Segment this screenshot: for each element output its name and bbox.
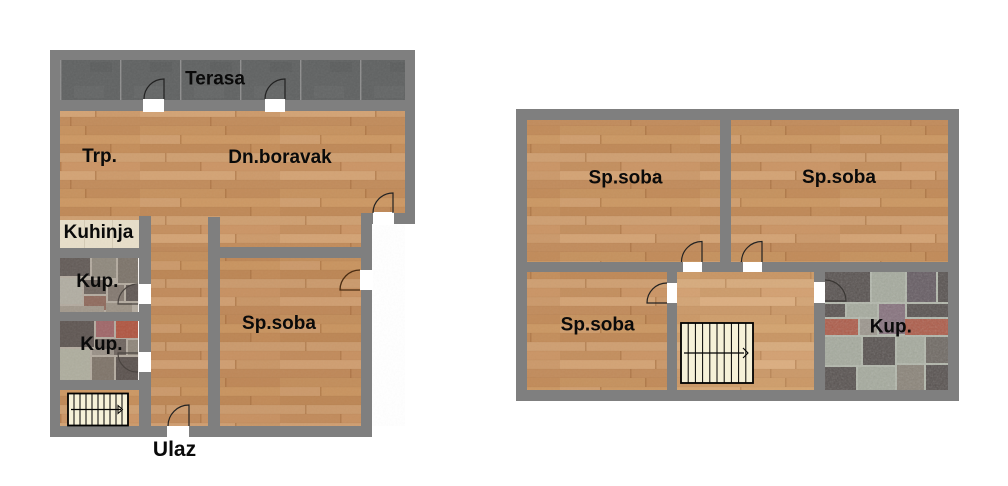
svg-text:Sp.soba: Sp.soba [561,315,635,336]
svg-text:Kup.: Kup. [870,317,912,338]
svg-text:Dn.boravak: Dn.boravak [228,147,332,168]
svg-text:Kup.: Kup. [76,271,118,292]
svg-text:Sp.soba: Sp.soba [242,313,316,334]
svg-text:Trp.: Trp. [82,146,117,167]
svg-text:Sp.soba: Sp.soba [802,167,876,188]
svg-text:Terasa: Terasa [185,69,245,90]
svg-text:Ulaz: Ulaz [153,438,196,461]
svg-text:Kup.: Kup. [80,334,122,355]
svg-text:Sp.soba: Sp.soba [589,168,663,189]
svg-text:Kuhinja: Kuhinja [64,222,134,243]
